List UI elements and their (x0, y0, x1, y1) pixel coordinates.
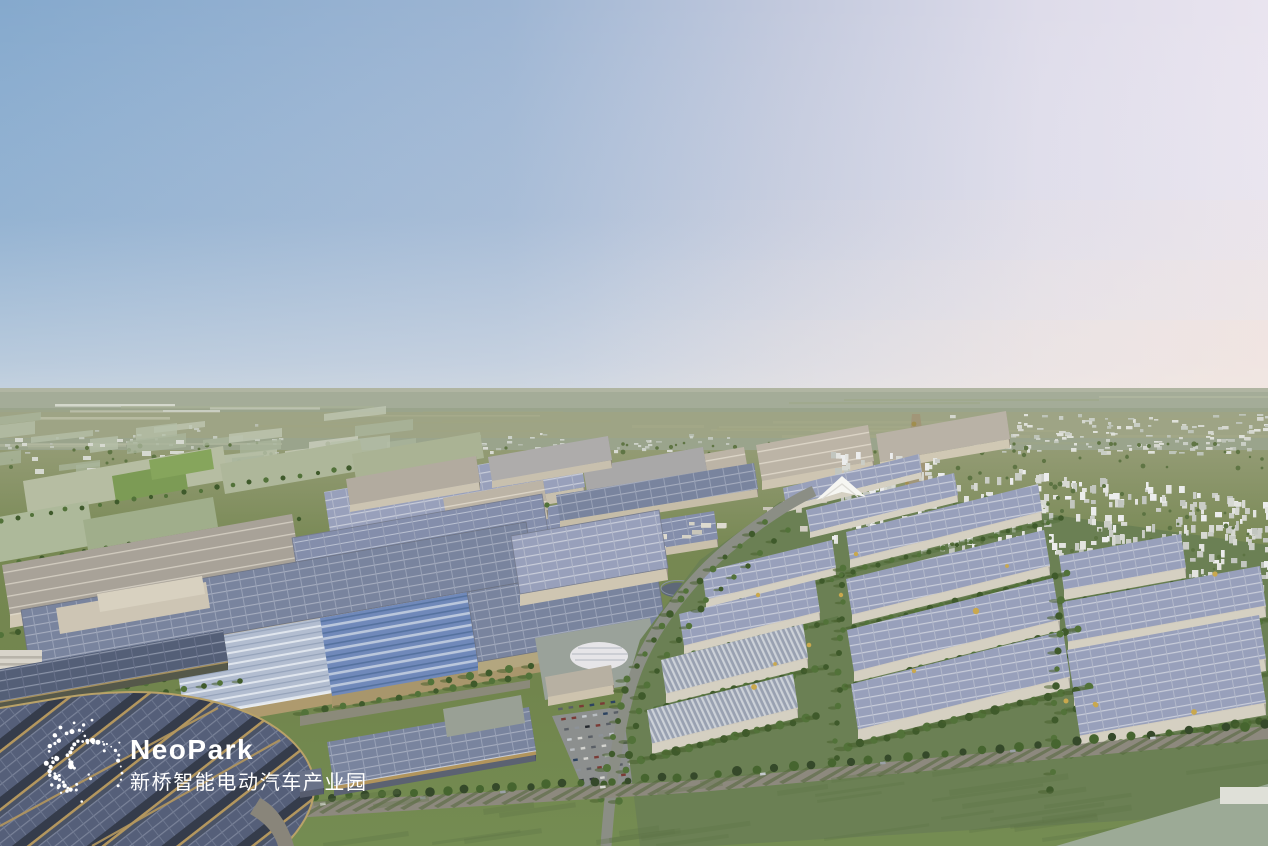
svg-text:NeoPark: NeoPark (130, 734, 254, 765)
svg-text:新桥智能电动汽车产业园: 新桥智能电动汽车产业园 (130, 771, 368, 794)
